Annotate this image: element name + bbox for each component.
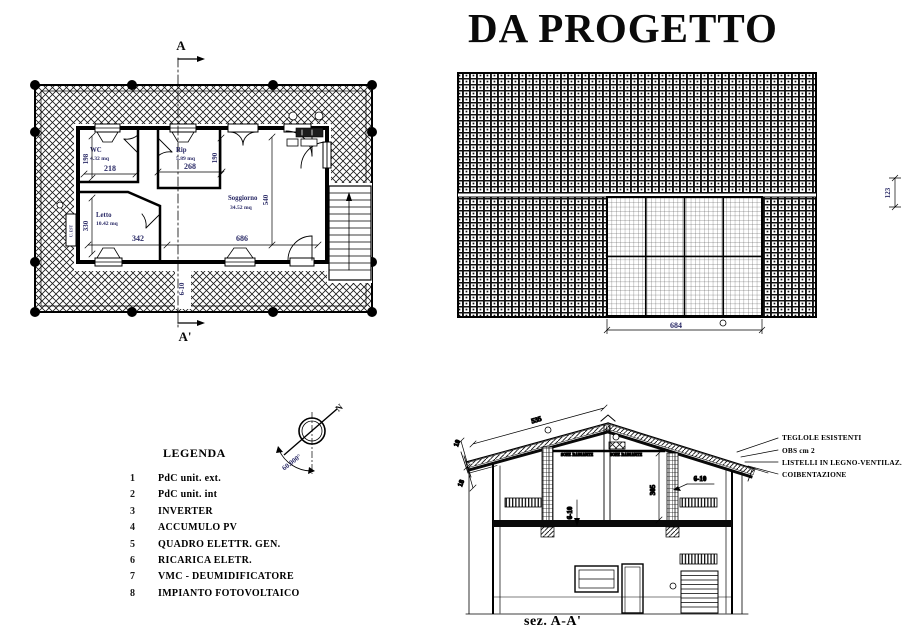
legend-item: 2PdC unit. int [130, 489, 300, 505]
dim-rip-h: 190 [211, 152, 219, 163]
dim-roof-t2: 18 [456, 478, 466, 488]
dim-roof-t1: 10 [452, 438, 462, 448]
legend-item-num: 5 [130, 539, 142, 550]
legend-item-label: VMC - DEUMIDIFICATORE [158, 571, 294, 582]
room-rip-name: Rip [176, 147, 187, 154]
section-marker-bottom: A' [179, 329, 192, 344]
callout-listelli: LISTELLI IN LEGNO-VENTILAZ. [782, 458, 902, 467]
room-soggiorno-area: 34.52 mq [230, 205, 253, 211]
legend-item-num: 1 [130, 473, 142, 484]
legend-item-num: 2 [130, 489, 142, 500]
dim-letto-w: 342 [132, 234, 144, 243]
drawing-sheet: DA PROGETTO [0, 0, 905, 643]
room-soggiorno-name: Soggiorno [228, 195, 258, 202]
compass-north-label: N [333, 401, 345, 413]
legend-item: 6RICARICA ELETR. [130, 555, 300, 571]
dim-sogg-h: 540 [262, 194, 270, 205]
legend-item-num: 8 [130, 588, 142, 599]
unit-ext-label: U. EST [70, 225, 74, 238]
dim-roof-edge: 123 [884, 187, 892, 198]
legend-item: 3INVERTER [130, 506, 300, 522]
dim-room-h: 305 [649, 484, 657, 495]
dim-pv-width: 684 [670, 321, 682, 330]
legend-item-num: 7 [130, 571, 142, 582]
stairs-plan [329, 186, 371, 280]
legend: LEGENDA 1PdC unit. ext. 2PdC unit. int 3… [130, 446, 300, 604]
legend-item-label: RICARICA ELETR. [158, 555, 252, 566]
legend-item: 7VMC - DEUMIDIFICATORE [130, 571, 300, 587]
legend-item-label: PdC unit. ext. [158, 473, 221, 484]
roof-section-right [601, 415, 768, 481]
legend-item: 4ACCUMULO PV [130, 522, 300, 538]
section-marker-top: A [176, 38, 186, 53]
legend-item-label: ACCUMULO PV [158, 522, 237, 533]
legend-item-label: IMPIANTO FOTOVOLTAICO [158, 588, 300, 599]
soffit-label-left: SOFF. RADIANTE [561, 453, 594, 457]
section-aa: 535 10 18 305 6-10 6-10 SOFF. RADIANTE S… [452, 405, 778, 614]
dim-rip-w: 268 [184, 162, 196, 171]
section-caption: sez. A-A' [524, 614, 581, 630]
legend-item-num: 4 [130, 522, 142, 533]
dim-wc-w: 218 [104, 164, 116, 173]
legend-item: 8IMPIANTO FOTOVOLTAICO [130, 588, 300, 604]
dim-slab-left: 6-10 [566, 506, 574, 519]
room-letto-area: 10.42 mq [96, 221, 119, 227]
floor-plan: U. EST A A' WC 4.32 mq Rip 5.89 mq Letto… [30, 38, 377, 344]
soffit-label-right: SOFF. RADIANTE [610, 453, 643, 457]
room-wc-area: 4.32 mq [90, 156, 110, 162]
callout-obs: OBS cm 2 [782, 446, 815, 455]
dim-wc-h: 198 [82, 153, 90, 164]
legend-item-label: INVERTER [158, 506, 213, 517]
callout-tegole: TEGLOLE ESISTENTI [782, 433, 861, 442]
dim-roof-slope: 535 [530, 415, 543, 426]
legend-item: 1PdC unit. ext. [130, 473, 300, 489]
legend-item-label: QUADRO ELETTR. GEN. [158, 539, 280, 550]
dim-plan-slab: 6-10 [178, 282, 186, 295]
roof-plan: 684 123 [458, 73, 901, 334]
legend-item-num: 6 [130, 555, 142, 566]
dim-slab-right: 6-10 [694, 475, 707, 483]
legend-item-num: 3 [130, 506, 142, 517]
legend-item-label: PdC unit. int [158, 489, 217, 500]
room-letto-name: Letto [96, 212, 112, 219]
dim-letto-h: 330 [82, 220, 90, 231]
callout-coibentazione: COIBENTAZIONE [782, 470, 847, 479]
legend-item: 5QUADRO ELETTR. GEN. [130, 539, 300, 555]
legend-heading: LEGENDA [163, 446, 300, 461]
pv-array [607, 197, 762, 316]
dim-sogg-w: 686 [236, 234, 248, 243]
